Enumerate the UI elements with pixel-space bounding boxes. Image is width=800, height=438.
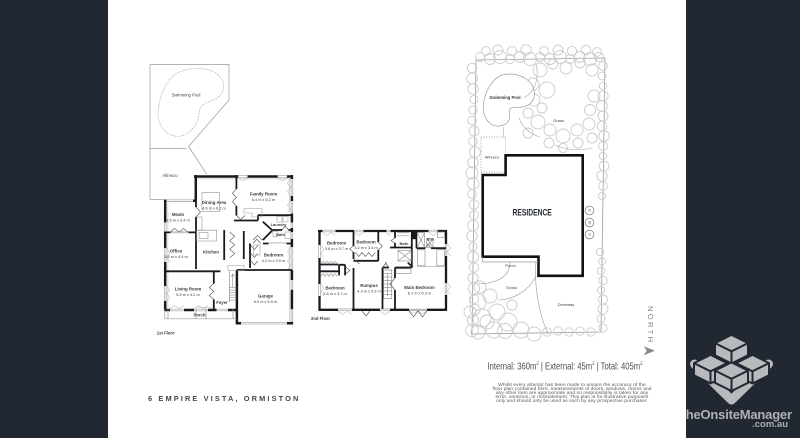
svg-text:Garage: Garage bbox=[258, 294, 274, 299]
svg-text:Ens: Ens bbox=[427, 237, 435, 242]
svg-text:4.3 m x 5.3 m: 4.3 m x 5.3 m bbox=[357, 289, 381, 294]
svg-text:3.5 m x 3.4 m: 3.5 m x 3.4 m bbox=[166, 218, 190, 223]
svg-text:RESIDENCE: RESIDENCE bbox=[513, 207, 553, 218]
svg-text:NORTH: NORTH bbox=[646, 306, 655, 344]
svg-text:Porch: Porch bbox=[194, 313, 206, 318]
svg-text:Porch: Porch bbox=[505, 263, 515, 268]
svg-text:Rumpus: Rumpus bbox=[360, 283, 378, 288]
svg-text:3.8 m x 3.7 m: 3.8 m x 3.7 m bbox=[325, 246, 349, 251]
svg-text:Bath: Bath bbox=[276, 232, 285, 237]
svg-text:Kitchen: Kitchen bbox=[203, 250, 219, 255]
svg-text:Grass: Grass bbox=[506, 285, 517, 290]
svg-text:Office: Office bbox=[170, 249, 183, 254]
svg-text:Alfresco: Alfresco bbox=[162, 173, 178, 178]
svg-text:Bedroom: Bedroom bbox=[264, 253, 283, 258]
svg-text:3.2 m x 3.4 m: 3.2 m x 3.4 m bbox=[354, 245, 378, 250]
svg-text:Family Room: Family Room bbox=[250, 192, 278, 197]
svg-text:5.5 m x 4.2 m: 5.5 m x 4.2 m bbox=[176, 292, 200, 297]
svg-text:Swimming Pool: Swimming Pool bbox=[172, 93, 201, 98]
svg-text:Dining Area: Dining Area bbox=[202, 200, 227, 205]
svg-text:Living Room: Living Room bbox=[175, 287, 202, 292]
svg-text:Bath: Bath bbox=[400, 241, 409, 246]
svg-text:Bedroom: Bedroom bbox=[325, 286, 344, 291]
svg-text:4.6 m x 6.2 m: 4.6 m x 6.2 m bbox=[202, 206, 226, 211]
svg-text:Meals: Meals bbox=[172, 212, 185, 217]
svg-text:6.0 m x 5.9 m: 6.0 m x 5.9 m bbox=[254, 299, 278, 304]
svg-text:Swimming Pool: Swimming Pool bbox=[489, 95, 520, 100]
svg-text:Bedroom: Bedroom bbox=[327, 241, 346, 246]
svg-text:Main Bedroom: Main Bedroom bbox=[404, 285, 435, 290]
svg-text:4.2 m x 3.9 m: 4.2 m x 3.9 m bbox=[262, 258, 286, 263]
svg-text:1st Floor: 1st Floor bbox=[157, 331, 175, 336]
svg-text:Foyer: Foyer bbox=[216, 300, 228, 305]
svg-text:6.4 m x 5.2 m: 6.4 m x 5.2 m bbox=[252, 197, 276, 202]
svg-text:Laundry: Laundry bbox=[271, 222, 288, 227]
svg-text:2nd Floor: 2nd Floor bbox=[311, 316, 330, 321]
svg-text:Driveway: Driveway bbox=[558, 302, 574, 307]
svg-text:3.5 m x 4.4 m: 3.5 m x 4.4 m bbox=[164, 254, 188, 259]
svg-text:6.1 m x 5.3 m: 6.1 m x 5.3 m bbox=[408, 291, 432, 296]
svg-text:Bedroom: Bedroom bbox=[356, 240, 375, 245]
svg-text:Grass: Grass bbox=[553, 118, 564, 123]
svg-text:Alfresco: Alfresco bbox=[485, 155, 500, 160]
svg-text:3.8 m x 3.7 m: 3.8 m x 3.7 m bbox=[323, 291, 347, 296]
